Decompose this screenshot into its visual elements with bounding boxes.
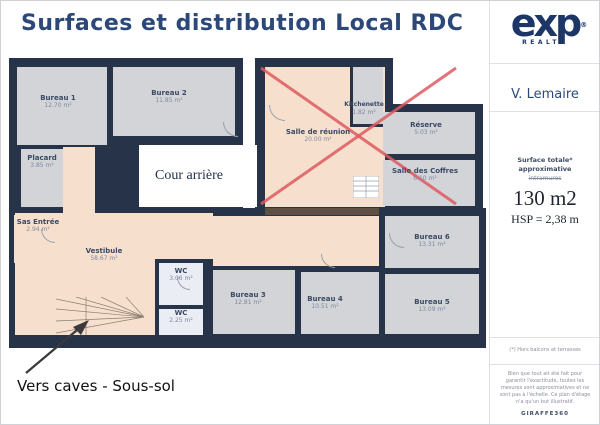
room-placard bbox=[21, 149, 63, 207]
measure-footnote: (*) Hors balcons et terrasses bbox=[490, 347, 600, 353]
room-bureau-5 bbox=[385, 274, 479, 334]
room-bureau-4 bbox=[301, 272, 379, 334]
red-cross-annotation bbox=[259, 65, 459, 207]
room-bureau-1 bbox=[17, 67, 107, 145]
hall-right-corridor bbox=[213, 216, 379, 266]
surface-total-value: 130 m2 bbox=[490, 186, 600, 211]
room-bureau-3 bbox=[213, 270, 295, 334]
giraffe360-brand: GIRAFFE360 bbox=[490, 411, 600, 417]
agent-name: V. Lemaire bbox=[490, 87, 600, 102]
exp-logo-text: exp bbox=[511, 1, 579, 45]
surface-label-struck: intramuros bbox=[490, 174, 600, 183]
ceiling-height-value: HSP = 2,38 m bbox=[490, 212, 600, 227]
surface-panel: Surface totale* approximative intramuros… bbox=[490, 156, 600, 227]
planter-strip bbox=[265, 208, 379, 215]
sidebar-divider bbox=[490, 111, 600, 112]
exp-realty-logo: exp® REALTY bbox=[490, 1, 600, 63]
room-wc-2 bbox=[159, 309, 203, 335]
room-bureau-2 bbox=[113, 67, 235, 136]
surface-label-line1: Surface totale* bbox=[490, 156, 600, 165]
disclaimer-box: Bien que tout ait été fait pour garantir… bbox=[490, 363, 600, 425]
info-sidebar: exp® REALTY V. Lemaire Surface totale* a… bbox=[489, 1, 600, 425]
footnote-box: (*) Hors balcons et terrasses bbox=[490, 337, 600, 365]
basement-label: Vers caves - Sous-sol bbox=[17, 377, 175, 395]
hall-mid bbox=[155, 213, 213, 259]
basement-arrow bbox=[21, 315, 96, 377]
page-title: Surfaces et distribution Local RDC bbox=[21, 11, 463, 36]
hall-upper-arm bbox=[63, 147, 95, 217]
registered-mark-icon: ® bbox=[580, 5, 587, 45]
floorplan-page: Surfaces et distribution Local RDC bbox=[0, 0, 600, 425]
exp-logo-wordmark: exp® bbox=[511, 3, 579, 43]
agent-box: V. Lemaire bbox=[490, 63, 600, 111]
courtyard-label: Cour arrière bbox=[146, 168, 232, 184]
surface-label-line2: approximative bbox=[490, 165, 600, 174]
disclaimer-text: Bien que tout ait été fait pour garantir… bbox=[498, 371, 592, 406]
